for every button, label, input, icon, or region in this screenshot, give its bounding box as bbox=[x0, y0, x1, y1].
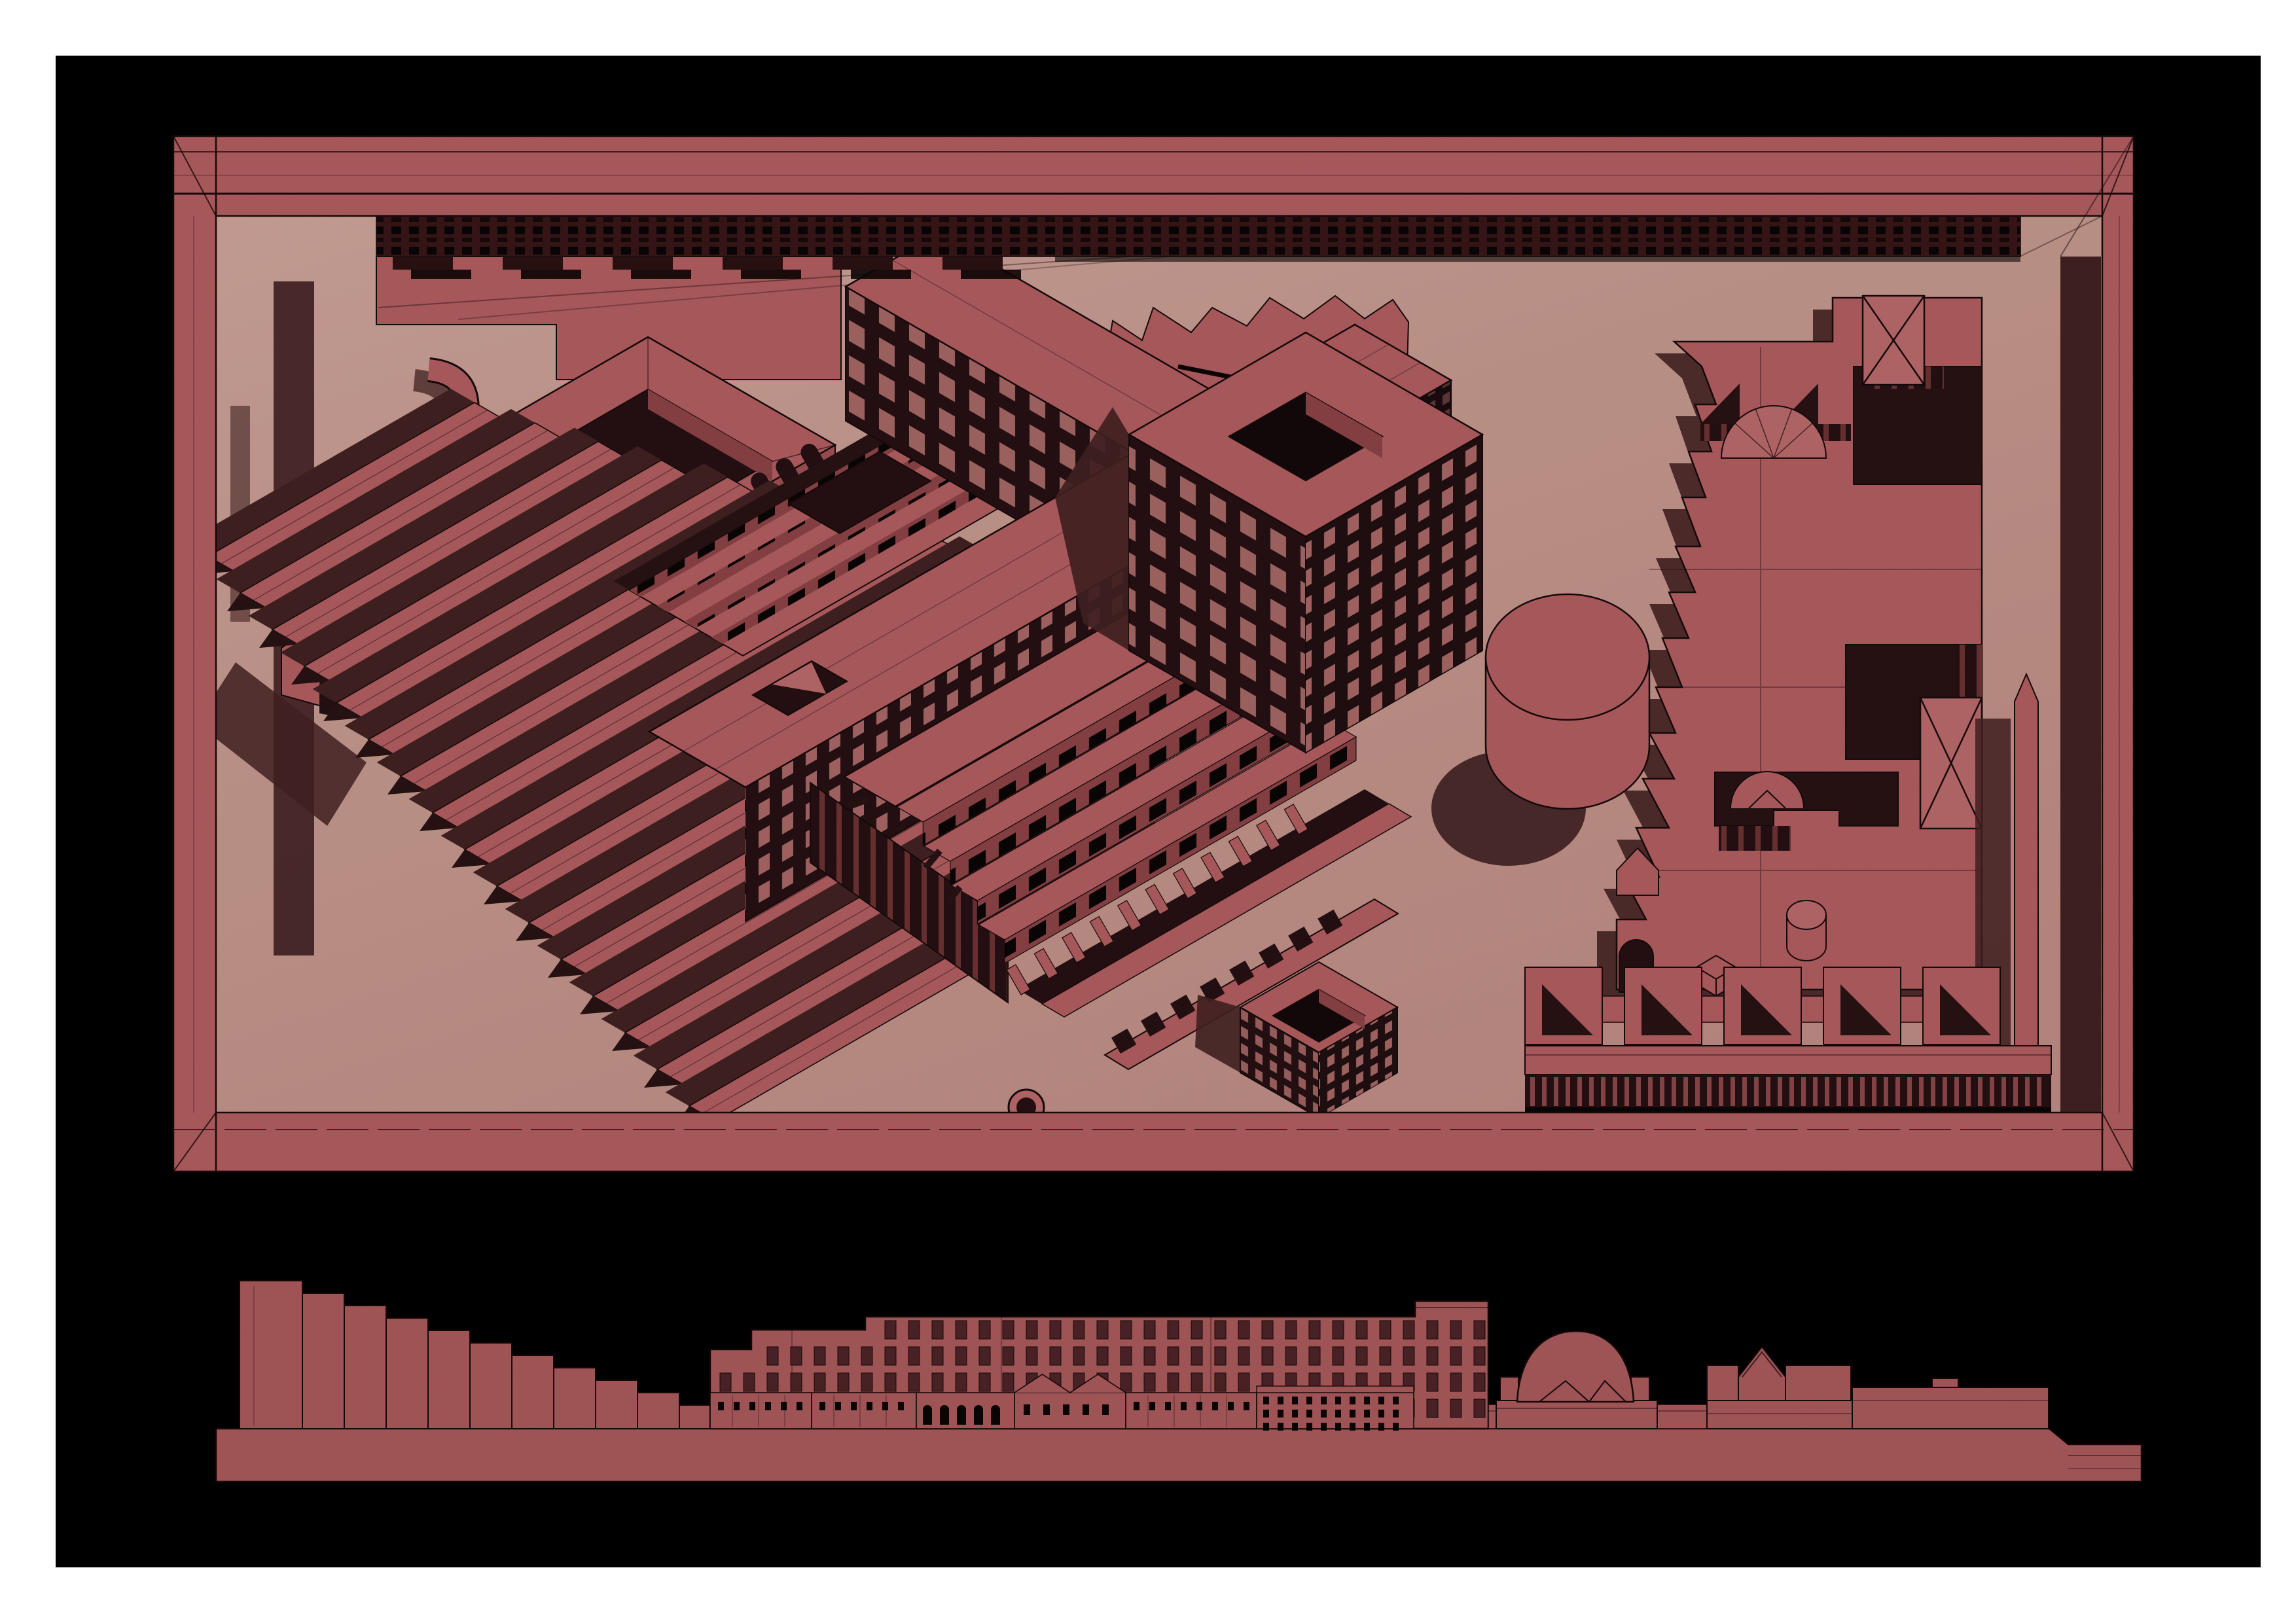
section-elevation bbox=[196, 1273, 2144, 1486]
poster-canvas bbox=[0, 0, 2296, 1623]
axonometric-site-plan bbox=[173, 136, 2134, 1171]
plan-grain-texture bbox=[173, 136, 2134, 1171]
elevation-grain-texture bbox=[196, 1273, 2144, 1486]
poster-page bbox=[0, 0, 2296, 1623]
